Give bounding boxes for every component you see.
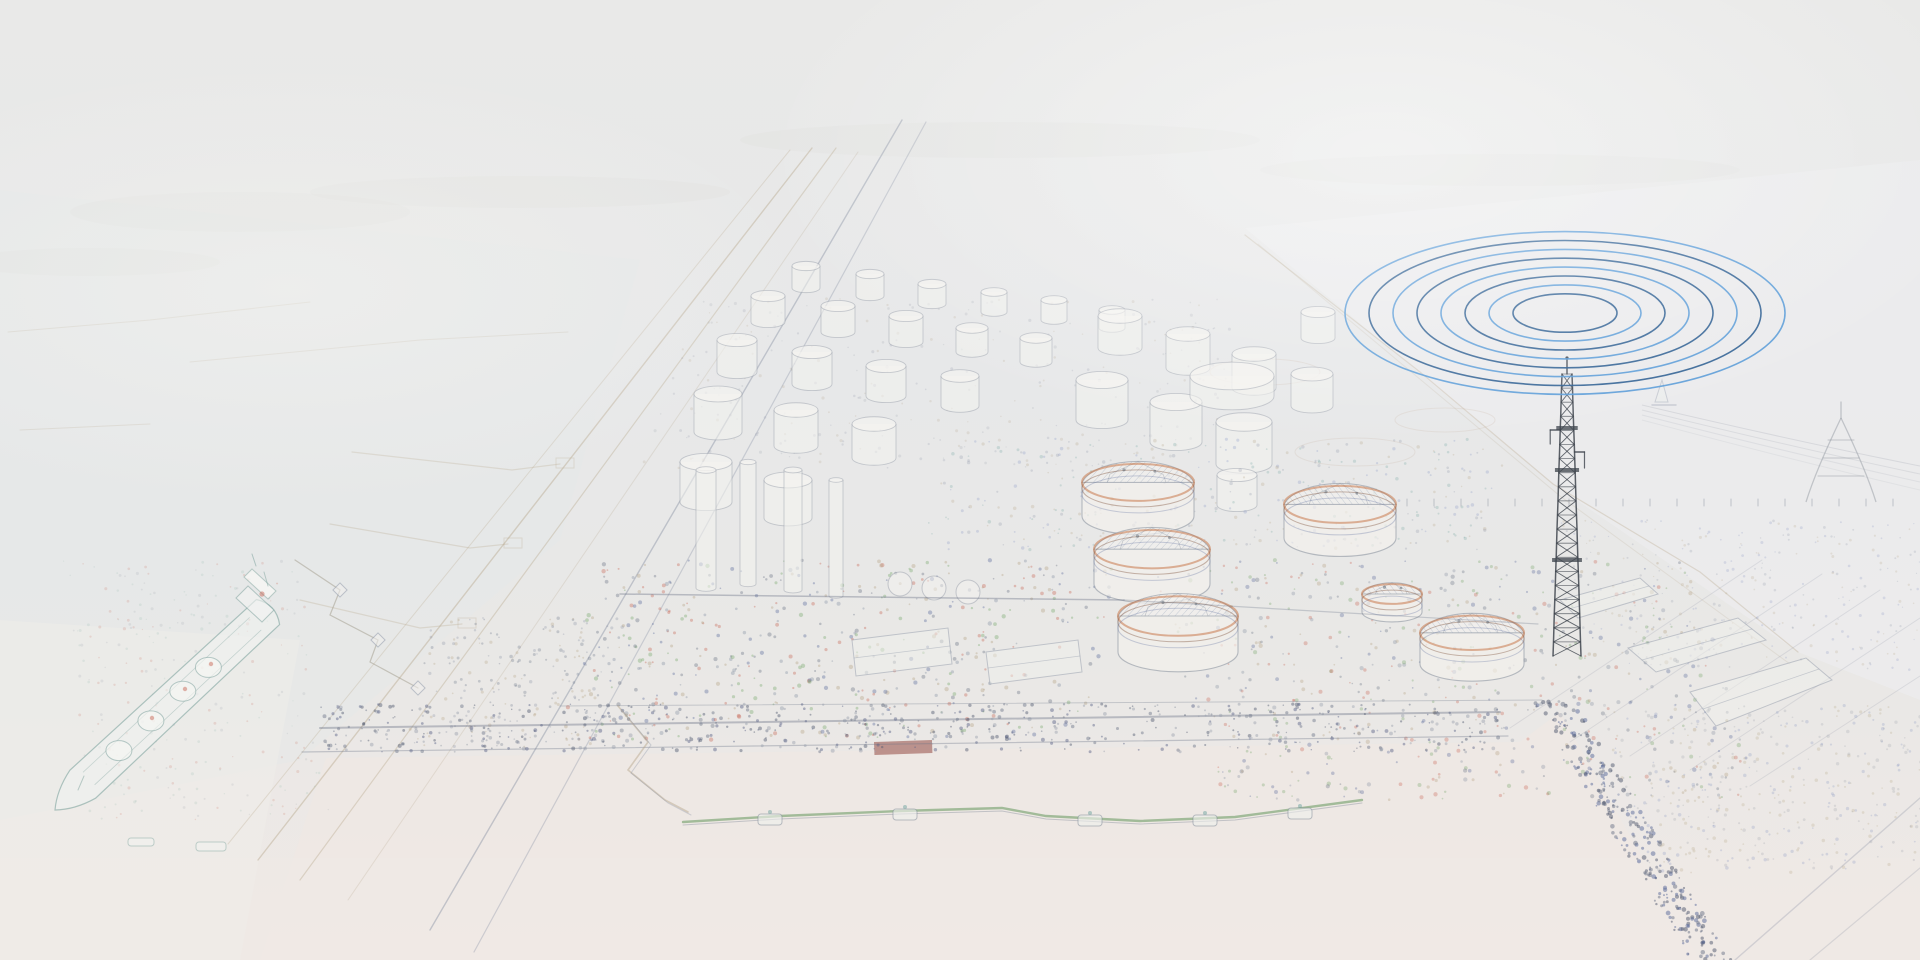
lng-storage-tanks — [1082, 461, 1524, 681]
scene-svg — [0, 0, 1920, 960]
sketch-aerial-lng-terminal — [0, 0, 1920, 960]
